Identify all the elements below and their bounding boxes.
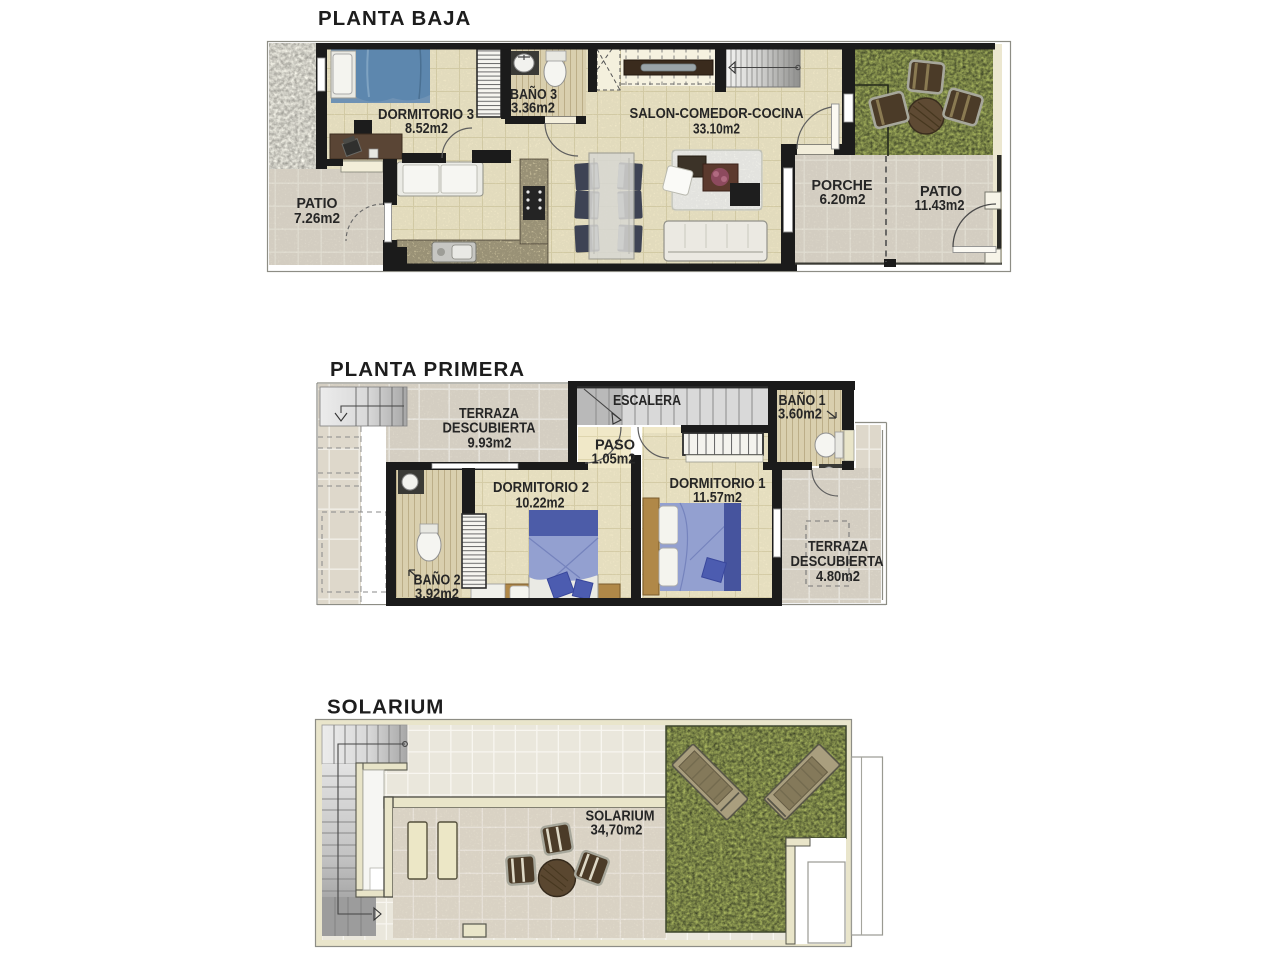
svg-text:TERRAZA: TERRAZA — [808, 539, 868, 555]
svg-text:34,70m2: 34,70m2 — [591, 823, 643, 839]
svg-text:3.60m2: 3.60m2 — [778, 407, 822, 423]
svg-text:DORMITORIO 2: DORMITORIO 2 — [493, 480, 589, 496]
svg-text:DESCUBIERTA: DESCUBIERTA — [443, 421, 536, 437]
svg-text:33.10m2: 33.10m2 — [693, 122, 740, 138]
svg-text:11.43m2: 11.43m2 — [915, 198, 965, 214]
svg-text:DESCUBIERTA: DESCUBIERTA — [791, 554, 884, 570]
svg-text:SOLARIUM: SOLARIUM — [327, 696, 444, 719]
svg-text:ESCALERA: ESCALERA — [613, 393, 681, 409]
svg-text:7.26m2: 7.26m2 — [294, 211, 340, 227]
svg-text:8.52m2: 8.52m2 — [405, 121, 448, 137]
svg-text:6.20m2: 6.20m2 — [820, 192, 866, 208]
svg-text:3.92m2: 3.92m2 — [415, 587, 459, 603]
svg-text:PLANTA BAJA: PLANTA BAJA — [318, 7, 471, 30]
svg-text:4.80m2: 4.80m2 — [816, 569, 860, 585]
svg-text:SALON-COMEDOR-COCINA: SALON-COMEDOR-COCINA — [630, 106, 804, 122]
svg-text:3.36m2: 3.36m2 — [511, 101, 555, 117]
svg-text:11.57m2: 11.57m2 — [693, 490, 742, 506]
svg-text:PATIO: PATIO — [297, 196, 338, 212]
svg-text:PLANTA PRIMERA: PLANTA PRIMERA — [330, 358, 525, 381]
svg-text:10.22m2: 10.22m2 — [516, 496, 565, 512]
svg-text:1.05m2: 1.05m2 — [592, 452, 636, 468]
svg-text:9.93m2: 9.93m2 — [468, 436, 512, 452]
